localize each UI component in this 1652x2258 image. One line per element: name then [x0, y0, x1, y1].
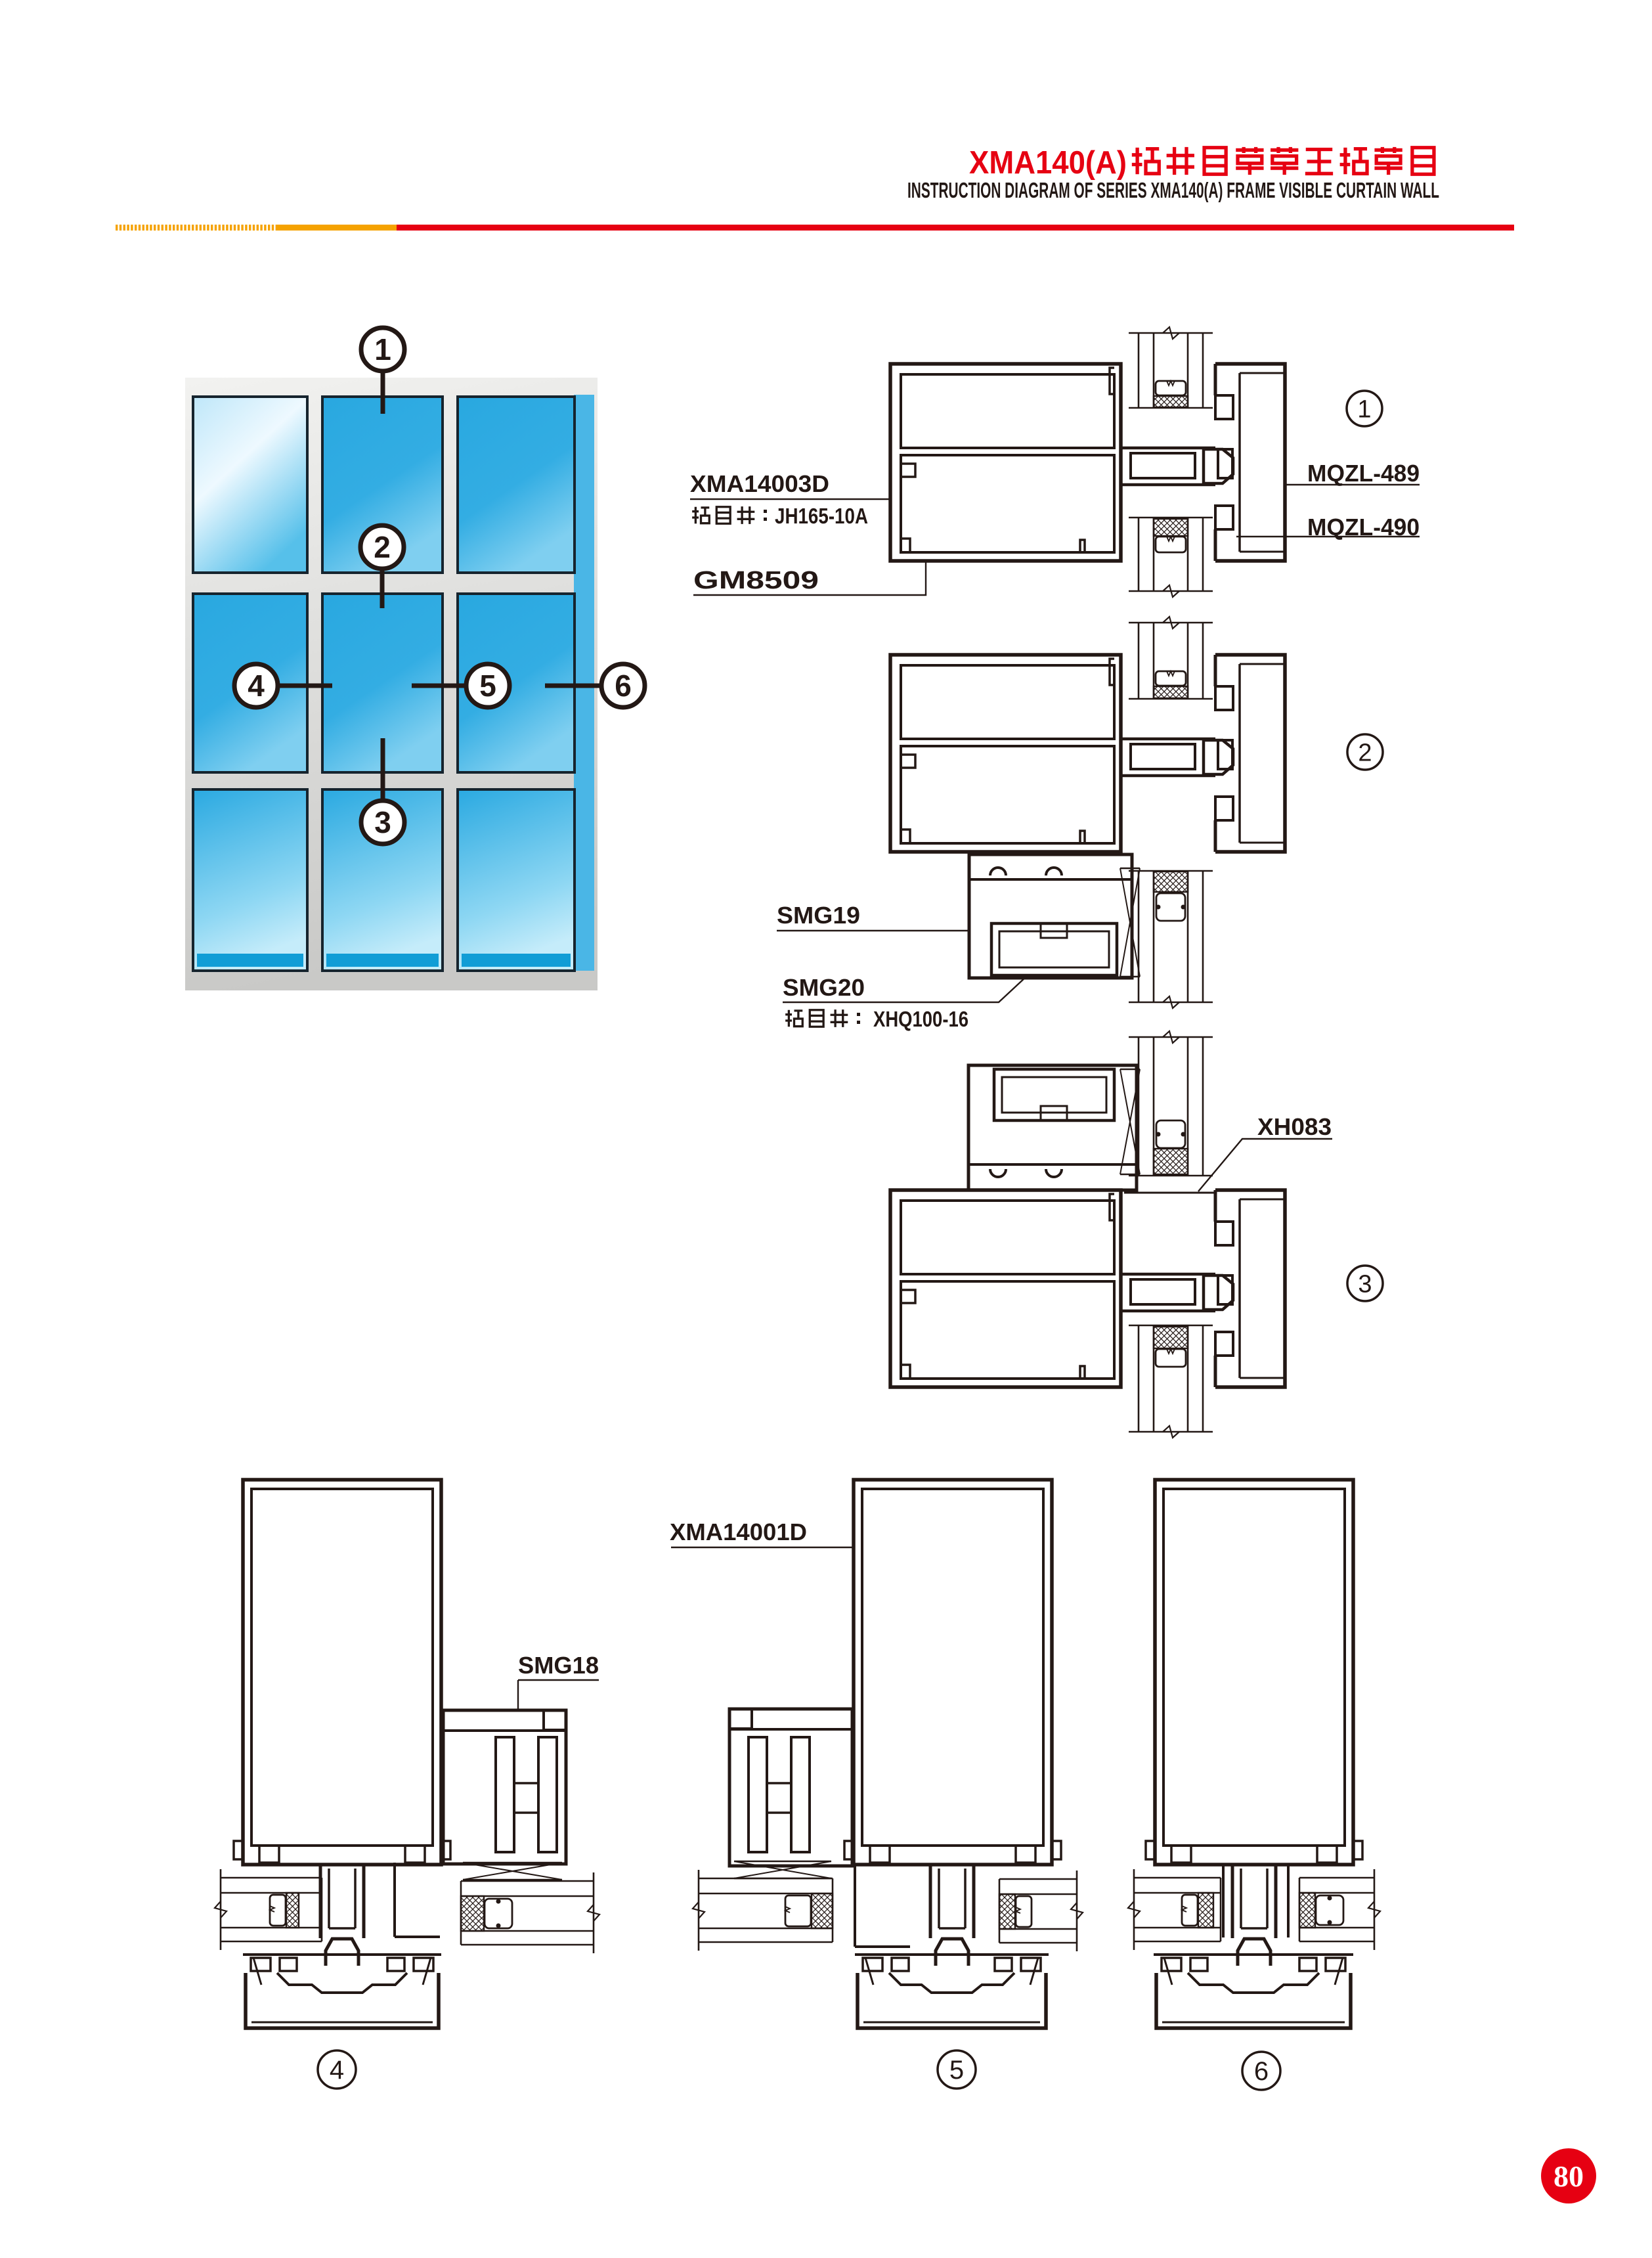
svg-text:XMA14003D: XMA14003D [690, 470, 829, 497]
svg-text:1: 1 [374, 332, 391, 366]
svg-text:1: 1 [1357, 395, 1371, 423]
svg-text:GM8509: GM8509 [693, 567, 819, 594]
svg-text:6: 6 [1254, 2057, 1269, 2086]
svg-text:6: 6 [615, 669, 632, 703]
svg-text:XH083: XH083 [1257, 1113, 1332, 1140]
svg-text:5: 5 [949, 2056, 964, 2085]
svg-text:2: 2 [1358, 739, 1372, 766]
svg-text:4: 4 [330, 2056, 344, 2085]
svg-text:3: 3 [374, 805, 391, 839]
svg-text:5: 5 [479, 669, 496, 703]
svg-text:XMA140(A): XMA140(A) [969, 145, 1127, 181]
svg-text:2: 2 [374, 530, 391, 564]
svg-text:SMG18: SMG18 [518, 1652, 599, 1679]
svg-text:INSTRUCTION DIAGRAM OF SERIES: INSTRUCTION DIAGRAM OF SERIES XMA140(A) … [907, 178, 1439, 202]
svg-text:MQZL-489: MQZL-489 [1307, 460, 1420, 487]
svg-text:JH165-10A: JH165-10A [775, 504, 868, 528]
svg-text:4: 4 [248, 669, 265, 703]
svg-text:SMG20: SMG20 [783, 974, 865, 1001]
svg-text:XHQ100-16: XHQ100-16 [873, 1007, 968, 1031]
svg-text:3: 3 [1358, 1270, 1372, 1298]
svg-text:80: 80 [1554, 2159, 1584, 2193]
svg-text:XMA14001D: XMA14001D [670, 1518, 807, 1545]
svg-text:SMG19: SMG19 [777, 902, 860, 929]
